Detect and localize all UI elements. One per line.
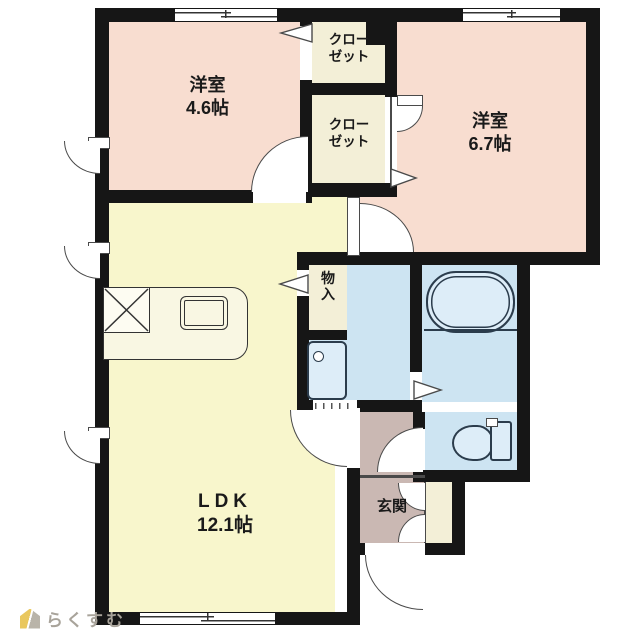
doorway-closet-upper: [300, 26, 312, 80]
window-casement-arc-2: [64, 246, 100, 279]
window-sliding-top-left: [175, 9, 277, 21]
rakusumu-logo-text: らくすむ: [46, 606, 126, 631]
entrance-text: 玄関: [377, 498, 407, 515]
wall-closet-bottom: [300, 183, 397, 197]
bedroom-46-size: 4.6帖: [186, 98, 229, 118]
wall-toilet-bottom: [413, 470, 530, 482]
window-sliding-top-right: [463, 9, 560, 21]
label-bedroom-46: 洋室 4.6帖: [140, 74, 275, 119]
toilet-handle: [486, 418, 498, 427]
label-entrance: 玄関: [358, 498, 426, 517]
wall-mid-horizontal: [297, 252, 600, 265]
doorway-bath: [410, 372, 422, 400]
room-washroom: [347, 265, 410, 402]
door-leaf-bedroom67: [347, 197, 360, 256]
washbasin-drain-circle: [313, 351, 324, 362]
label-bedroom-67: 洋室 6.7帖: [425, 110, 555, 155]
bedroom-46-name: 洋室: [190, 75, 226, 95]
label-ldk: LDK 12.1帖: [150, 490, 300, 538]
closet-lower-face-line: [390, 97, 392, 183]
entrance-step-line: [360, 475, 425, 478]
doorway-entrance: [365, 543, 425, 555]
closet-upper-line2: ゼット: [329, 49, 370, 64]
window-casement-arc-1: [64, 141, 100, 174]
toilet-tank: [490, 421, 512, 461]
kitchen-sink: [180, 296, 228, 330]
rakusumu-logo: らくすむ: [20, 606, 126, 631]
wall-right-upper: [586, 8, 600, 265]
window-sliding-bottom: [140, 613, 275, 624]
bedroom-67-name: 洋室: [472, 111, 508, 131]
wall-closet-mid: [300, 83, 397, 95]
wall-storage-bottom: [303, 330, 347, 340]
window-casement-arc-3: [64, 431, 100, 464]
wall-right-mid: [517, 252, 530, 482]
doorway-ldk-hall: [347, 408, 360, 468]
washbasin: [307, 341, 347, 400]
storage-text: 物入: [320, 270, 335, 302]
floorplan: 洋室 4.6帖 洋室 6.7帖 LDK 12.1帖 クロー ゼット クロー ゼッ…: [0, 0, 640, 640]
label-storage: 物入: [313, 270, 343, 302]
ldk-size: 12.1帖: [197, 515, 253, 536]
label-closet-upper: クロー ゼット: [312, 32, 386, 66]
bathtub: [426, 271, 515, 333]
room-shoe-cabinet: [425, 482, 452, 543]
door-arc-entrance: [365, 555, 423, 610]
closet-lower-line2: ゼット: [329, 134, 370, 149]
ldk-name: LDK: [198, 491, 252, 512]
bath-deck-line: [424, 329, 517, 331]
rakusumu-house-icon: [20, 609, 40, 629]
label-closet-lower: クロー ゼット: [312, 117, 386, 151]
bedroom-67-size: 6.7帖: [468, 134, 511, 154]
closet-lower-line1: クロー: [329, 117, 370, 132]
doorway-storage: [297, 270, 309, 296]
closet-upper-line1: クロー: [329, 32, 370, 47]
toilet-bowl: [452, 425, 494, 461]
door-leaf-closet-lower: [397, 95, 423, 106]
kitchen-refrigerator-space: [103, 287, 150, 333]
